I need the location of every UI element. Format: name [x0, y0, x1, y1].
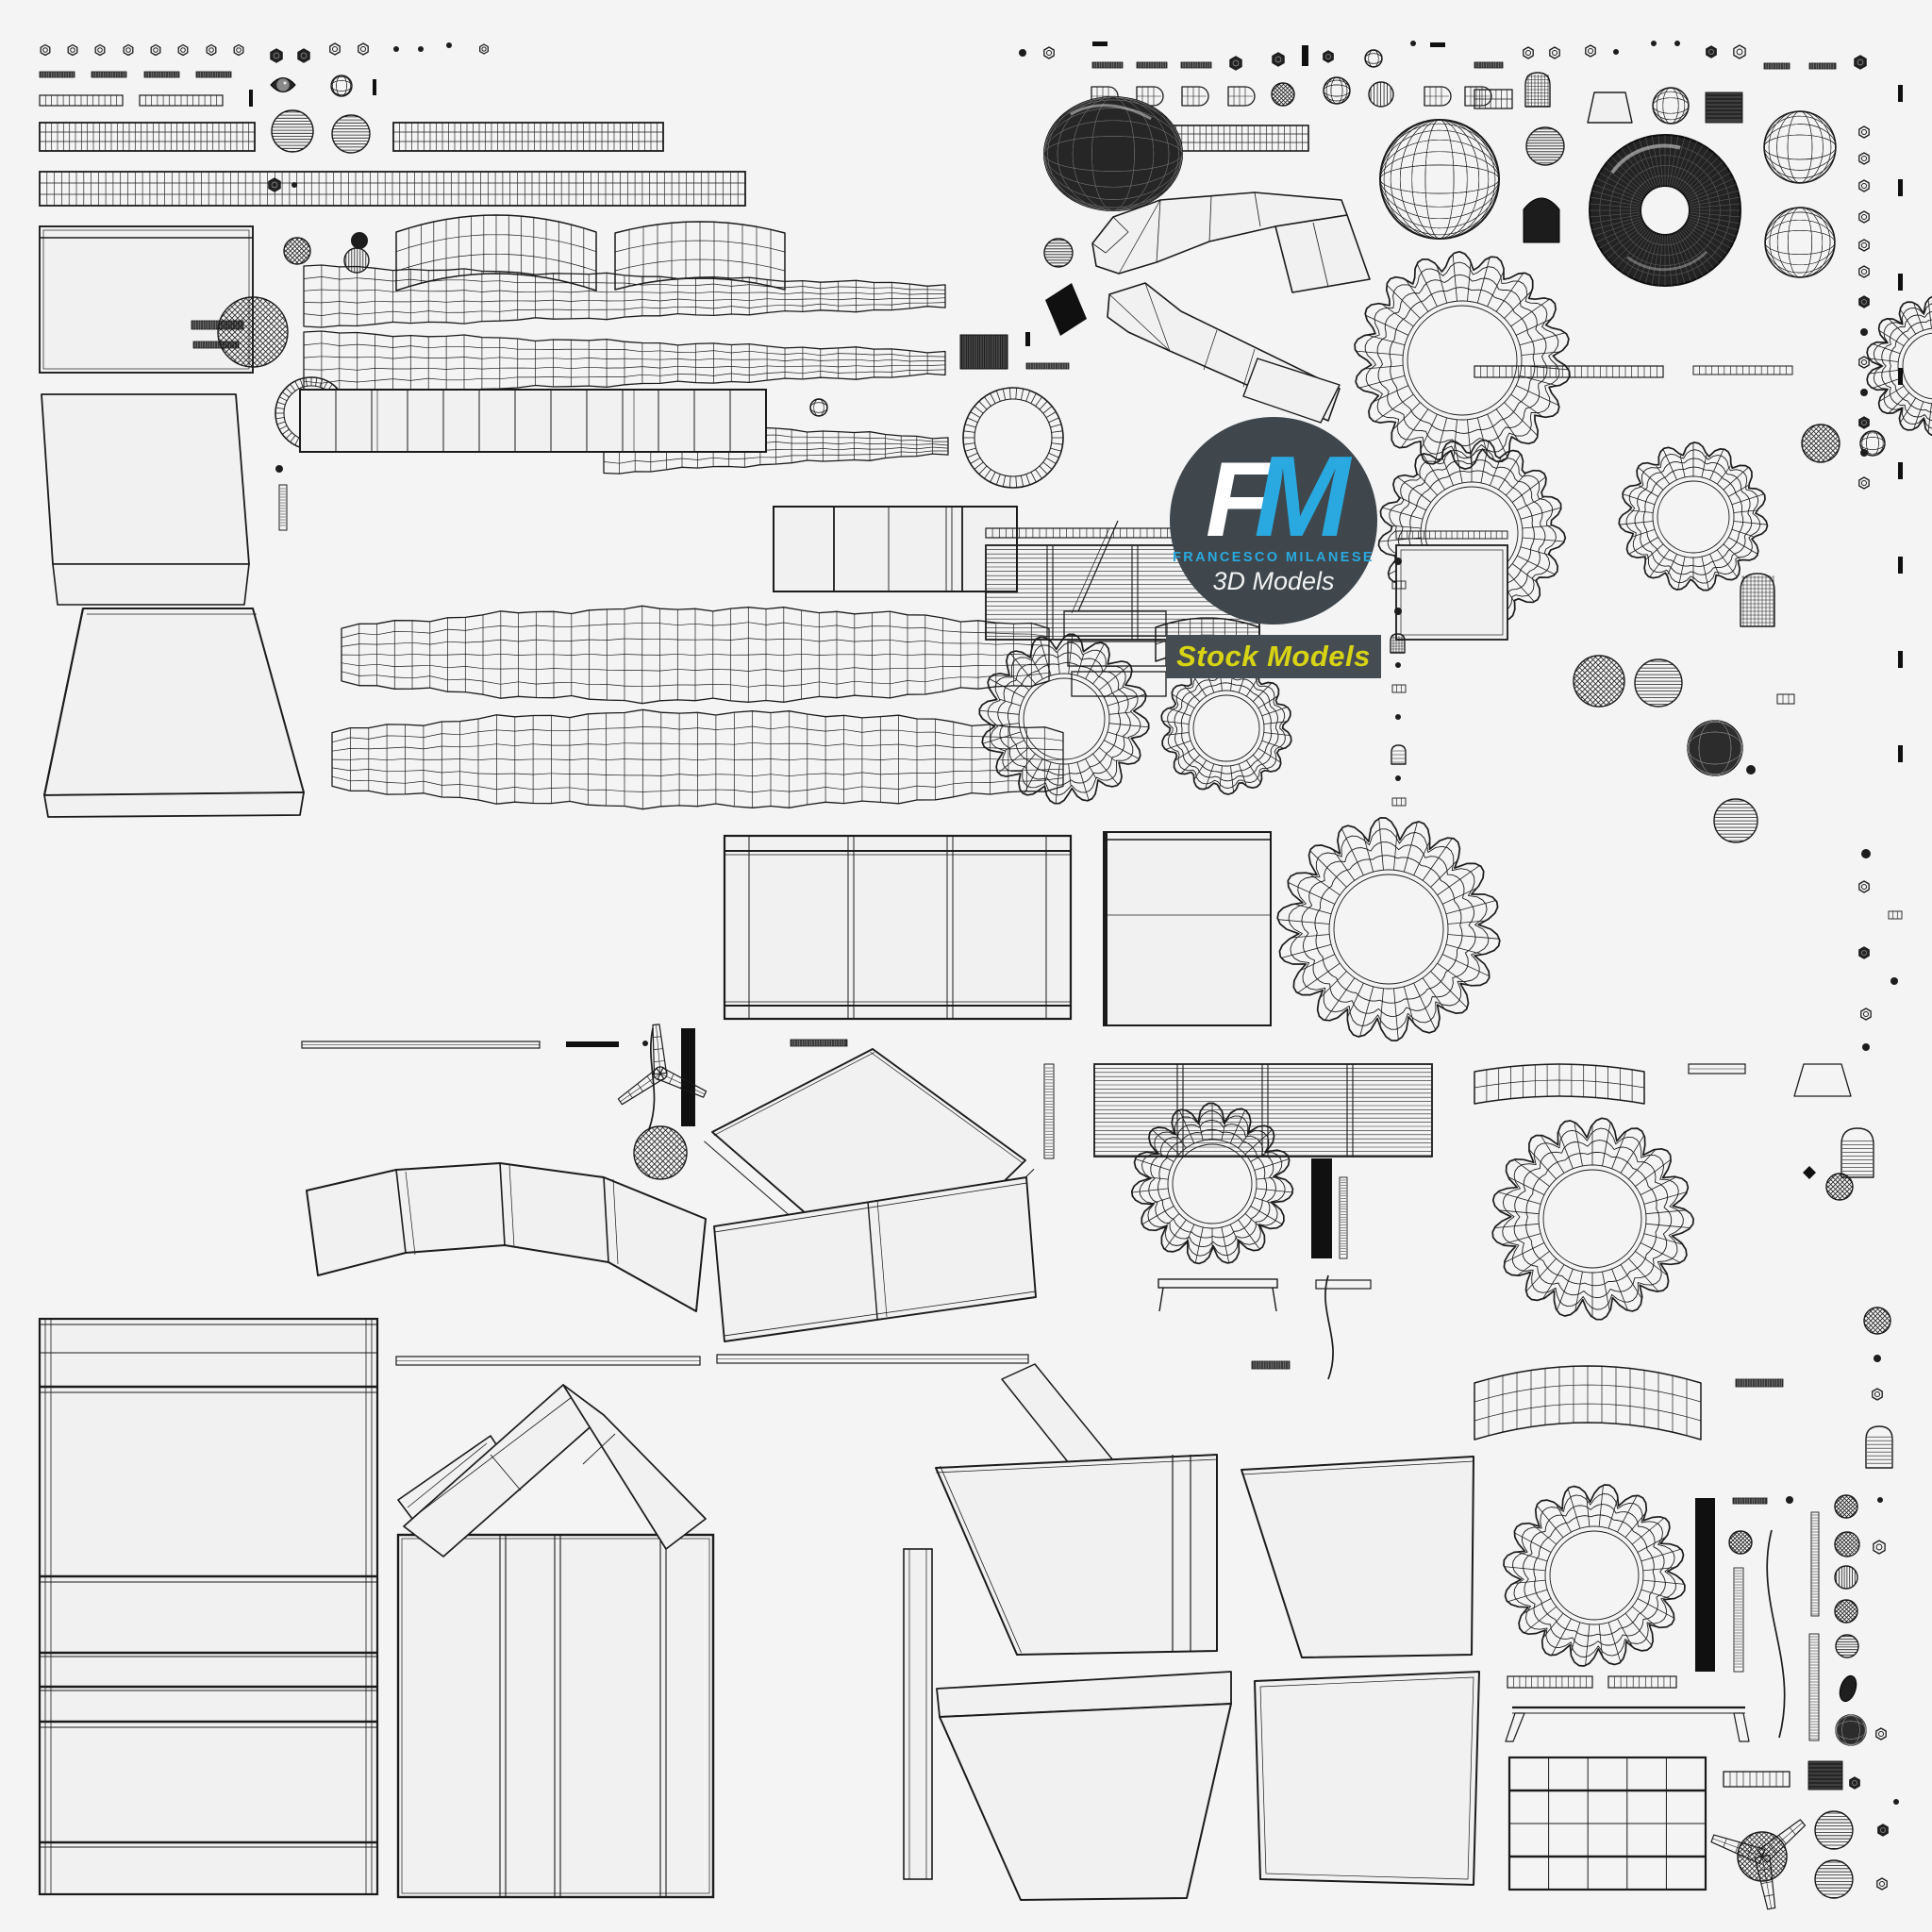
right-edge-fasteners	[1794, 85, 1903, 1468]
watermark-logo: FM FRANCESCO MILANESE 3D Models Stock Mo…	[1170, 417, 1383, 625]
bottom-left-panels	[40, 1319, 713, 1897]
logo-subtitle: 3D Models	[1212, 567, 1334, 596]
smile-bands-top	[396, 215, 785, 291]
fastener-row-top	[41, 41, 1866, 70]
bottom-trapezoids	[904, 1455, 1479, 1900]
left-panels	[40, 178, 369, 817]
logo-initials: FM	[1206, 449, 1341, 543]
stock-models-badge: Stock Models	[1166, 635, 1381, 678]
plank-bands	[300, 390, 1017, 591]
bottom-right-cluster	[1474, 1366, 1899, 1909]
grid-bands	[40, 90, 1512, 206]
wireframe-canvas	[0, 0, 1932, 1932]
logo-circle: FM FRANCESCO MILANESE 3D Models	[1170, 417, 1377, 625]
poly-boomerangs	[1092, 192, 1370, 423]
small-strips-top	[40, 62, 1836, 107]
logo-author-name: FRANCESCO MILANESE	[1173, 550, 1374, 565]
uv-wireframe-sheet: FM FRANCESCO MILANESE 3D Models Stock Mo…	[0, 0, 1932, 1932]
logo-letter-m: M	[1254, 432, 1341, 560]
watermark-backdrop	[1064, 521, 1166, 696]
